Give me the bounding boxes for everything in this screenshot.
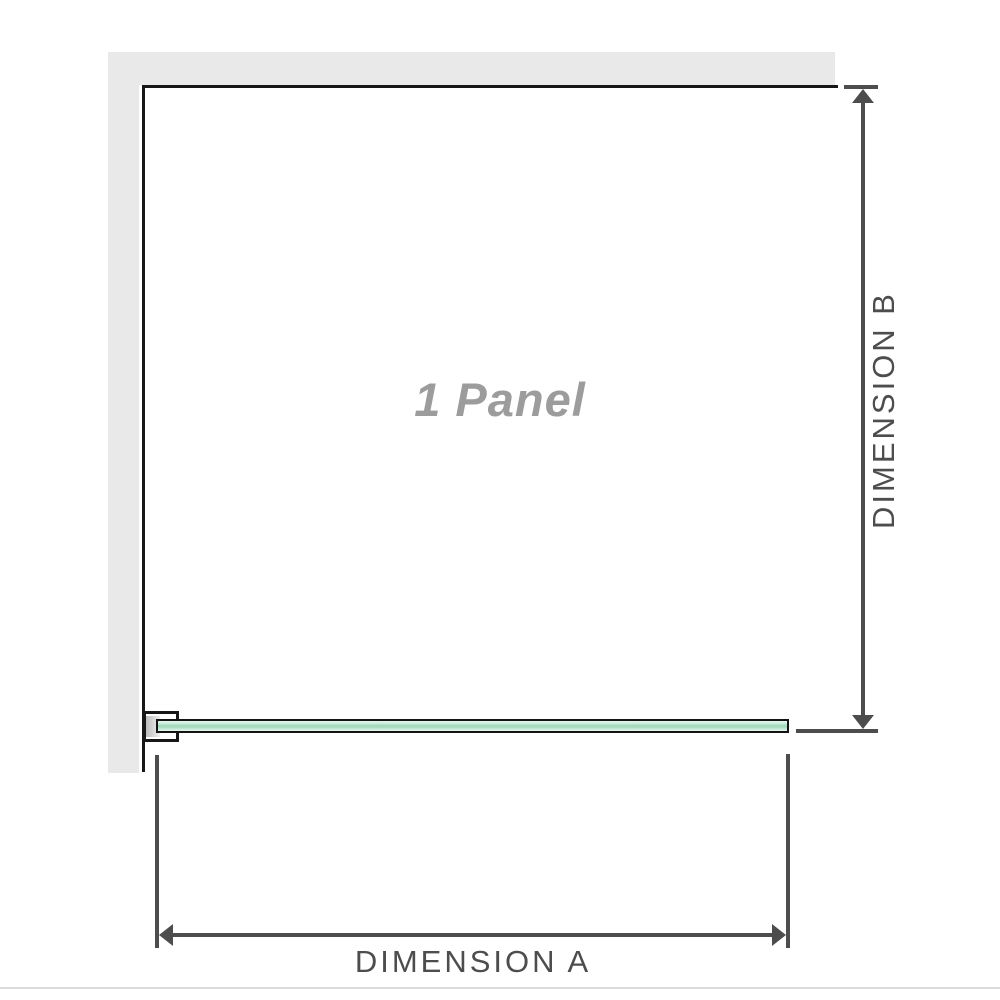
- dimension-a-left-extension-line: [155, 755, 159, 948]
- panel-count-label: 1 Panel: [350, 370, 650, 430]
- dimension-b-arrow-up-icon: [852, 89, 874, 103]
- wall-top: [108, 52, 835, 85]
- dimension-b-line: [861, 100, 865, 716]
- panel-frame-left-line: [142, 85, 145, 772]
- dimension-b-label: DIMENSION B: [868, 260, 900, 560]
- shower-panel-diagram: 1 Panel DIMENSION B DIMENSION A: [0, 0, 1000, 1000]
- bottom-divider: [0, 987, 1000, 989]
- wall-left: [108, 52, 139, 773]
- dimension-a-right-extension-line: [786, 754, 790, 948]
- panel-frame-top-line: [142, 85, 838, 88]
- dimension-b-arrow-down-icon: [852, 715, 874, 729]
- dimension-a-label: DIMENSION A: [323, 944, 623, 980]
- dimension-b-bottom-tick: [796, 729, 878, 733]
- dimension-a-line: [171, 933, 774, 937]
- glass-panel: [156, 719, 789, 733]
- dimension-a-arrow-left-icon: [159, 924, 173, 946]
- dimension-a-arrow-right-icon: [772, 924, 786, 946]
